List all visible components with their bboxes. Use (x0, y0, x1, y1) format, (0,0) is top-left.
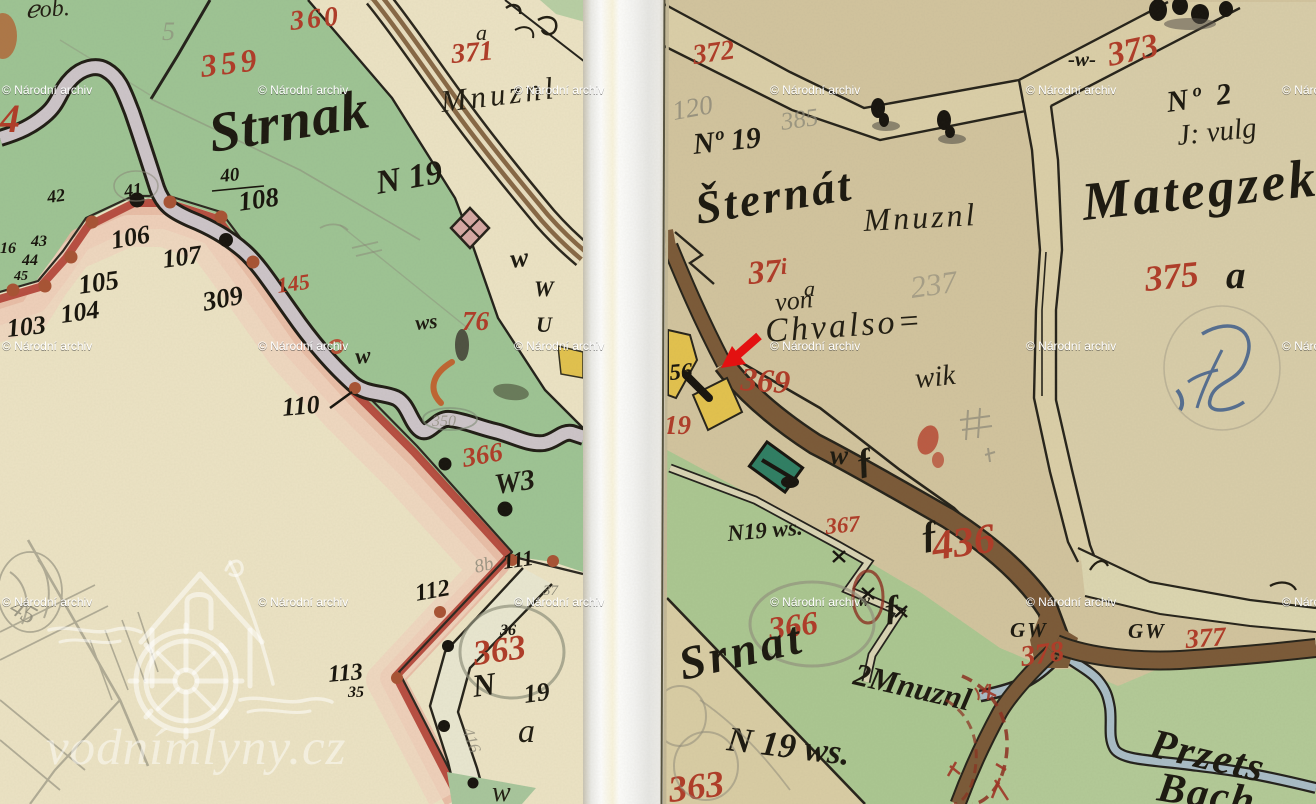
svg-text:© Národní archiv: © Národní archiv (514, 339, 604, 353)
svg-text:© Národní archiv: © Národní archiv (1282, 595, 1316, 609)
svg-text:© Národní archiv: © Národní archiv (1282, 339, 1316, 353)
svg-text:© Národní archiv: © Národní archiv (2, 339, 92, 353)
svg-text:© Národní archiv: © Národní archiv (770, 339, 860, 353)
svg-text:© Národní archiv: © Národní archiv (1282, 83, 1316, 97)
svg-text:© Národní archiv: © Národní archiv (514, 595, 604, 609)
svg-text:© Národní archiv: © Národní archiv (1026, 83, 1116, 97)
svg-text:© Národní archiv: © Národní archiv (770, 83, 860, 97)
svg-text:© Národní archiv: © Národní archiv (258, 595, 348, 609)
svg-text:© Národní archiv: © Národní archiv (2, 595, 92, 609)
svg-text:© Národní archiv: © Národní archiv (770, 595, 860, 609)
svg-text:© Národní archiv: © Národní archiv (514, 83, 604, 97)
svg-text:© Národní archiv: © Národní archiv (2, 83, 92, 97)
svg-text:© Národní archiv: © Národní archiv (258, 83, 348, 97)
svg-text:vodnímlyny.cz: vodnímlyny.cz (46, 720, 347, 776)
svg-text:© Národní archiv: © Národní archiv (1026, 595, 1116, 609)
svg-text:© Národní archiv: © Národní archiv (1026, 339, 1116, 353)
svg-text:© Národní archiv: © Národní archiv (258, 339, 348, 353)
